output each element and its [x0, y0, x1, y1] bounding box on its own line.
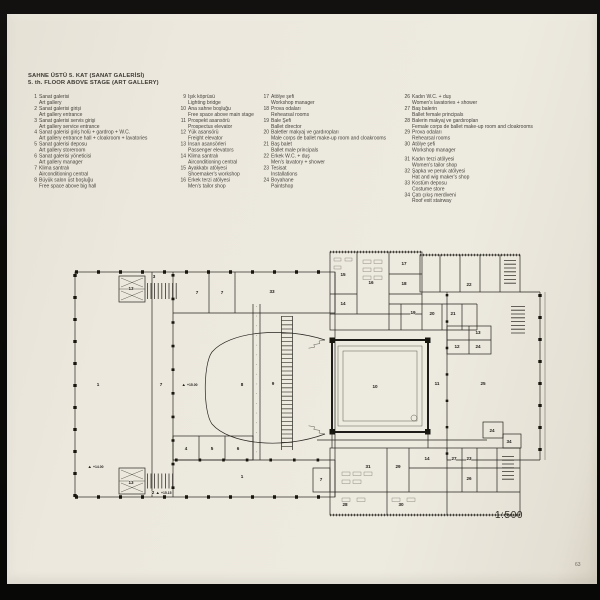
svg-text:25: 25	[480, 381, 486, 386]
legend-item: 5Sanat galerisi deposuArt gallery storer…	[28, 142, 147, 154]
svg-text:11: 11	[435, 381, 440, 386]
legend-item: 20Baletler makyaj ve gardıroplarıMale co…	[260, 130, 386, 142]
plan-title-english: 5. th. FLOOR ABOVE STAGE (ART GALLERY)	[28, 79, 159, 86]
plan-title-turkish: SAHNE ÜSTÜ 5. KAT (SANAT GALERİSİ)	[28, 72, 159, 79]
auditorium-void	[205, 332, 325, 443]
svg-text:29: 29	[395, 464, 401, 469]
svg-text:33: 33	[269, 289, 275, 294]
svg-text:13: 13	[128, 480, 134, 485]
floor-plan: 1337733151617181419202122178910112512132…	[57, 244, 557, 544]
svg-text:27: 27	[451, 456, 457, 461]
legend-item: 14Klima santralıAirconditioning central	[177, 154, 254, 166]
svg-text:31: 31	[365, 464, 371, 469]
floor-plan-drawing: 1337733151617181419202122178910112512132…	[57, 244, 557, 544]
book-page: SAHNE ÜSTÜ 5. KAT (SANAT GALERİSİ) 5. th…	[7, 14, 597, 584]
legend-item: 32Şapka ve peruk atölyesiHat and wig mak…	[401, 168, 533, 180]
legend-item: 6Sanat galerisi yöneticisiArt gallery ma…	[28, 154, 147, 166]
svg-text:2: 2	[152, 490, 155, 495]
legend-item: 9Işık köprüsüLighting bridge	[177, 94, 254, 106]
legend-item: 31Kadın terzi atölyesiWomen's tailor sho…	[401, 157, 533, 169]
legend-item: 34Çatı çıkış merdiveniRoof exit stairway	[401, 192, 533, 204]
svg-text:18: 18	[401, 281, 407, 286]
legend-item: 26Kadın W.C. + duşWomen's lavatories + s…	[401, 94, 533, 106]
plan-title: SAHNE ÜSTÜ 5. KAT (SANAT GALERİSİ) 5. th…	[28, 72, 159, 86]
legend-item: 27Baş balerinBallet female principals	[401, 106, 533, 118]
svg-text:13: 13	[128, 286, 134, 291]
svg-text:7: 7	[160, 382, 163, 387]
legend-item: 29Prova odalarıRehearsal rooms	[401, 130, 533, 142]
svg-text:16: 16	[368, 280, 374, 285]
scale-label: 1:500	[495, 510, 523, 521]
svg-text:22: 22	[466, 282, 472, 287]
svg-text:26: 26	[466, 476, 472, 481]
svg-text:7: 7	[196, 290, 199, 295]
legend-item: 15Ayakkabı atölyesiShoemaker's workshop	[177, 165, 254, 177]
legend-item: 24BoyahanePaintshop	[260, 177, 386, 189]
legend-item: 30Atölye şefiWorkshop manager	[401, 142, 533, 154]
legend-item: 21Baş baletBallet male principals	[260, 142, 386, 154]
legend-item: 10Ana sahne boşluğuFree space above main…	[177, 106, 254, 118]
svg-text:1: 1	[241, 474, 244, 479]
svg-text:7: 7	[221, 290, 224, 295]
svg-text:+14.00: +14.00	[93, 465, 104, 469]
svg-text:24: 24	[489, 428, 495, 433]
legend-item: 7Klima santralıAirconditioning central	[28, 165, 147, 177]
legend-item: 17Atölye şefiWorkshop manager	[260, 94, 386, 106]
legend-column-4: 26Kadın W.C. + duşWomen's lavatories + s…	[401, 94, 533, 204]
svg-text:1: 1	[97, 382, 100, 387]
svg-text:14: 14	[340, 301, 346, 306]
svg-text:34: 34	[506, 439, 512, 444]
svg-text:20: 20	[429, 311, 435, 316]
svg-text:30: 30	[398, 502, 404, 507]
legend-item: 2Sanat galerisi girişiArt gallery entran…	[28, 106, 147, 118]
top-workshop-block	[330, 252, 422, 330]
legend-item: 22Erkek W.C. + duşMen's lavatory + showe…	[260, 154, 386, 166]
svg-text:23: 23	[466, 456, 472, 461]
legend-item: 33Kostüm deposuCostume store	[401, 180, 533, 192]
legend-item: 12Yük asansörüFreight elevator	[177, 130, 254, 142]
svg-text:6: 6	[237, 446, 240, 451]
page-number: 63	[575, 562, 581, 568]
legend-item: 3Sanat galerisi servis girişiArt gallery…	[28, 118, 147, 130]
svg-text:13: 13	[475, 330, 481, 335]
legend-item: 11Prospekt asansörüProspectus elevator	[177, 118, 254, 130]
column-grid	[75, 272, 540, 497]
legend-item: 19Bale ŞefiBallet director	[260, 118, 386, 130]
svg-text:4: 4	[185, 446, 188, 451]
workbenches-bottom	[342, 472, 415, 502]
svg-text:3: 3	[153, 274, 156, 279]
svg-text:19: 19	[410, 310, 416, 315]
svg-text:21: 21	[450, 311, 456, 316]
svg-text:24: 24	[475, 344, 481, 349]
legend-item: 8Büyük salon üst boşluğuFree space above…	[28, 177, 147, 189]
legend-item: 18Prova odalarıRehearsal rooms	[260, 106, 386, 118]
svg-text:7: 7	[320, 477, 323, 482]
legend-column-1: 1Sanat galerisiArt gallery2Sanat galeris…	[28, 94, 147, 189]
svg-text:8: 8	[241, 382, 244, 387]
svg-text:14: 14	[424, 456, 430, 461]
book-photo: SAHNE ÜSTÜ 5. KAT (SANAT GALERİSİ) 5. th…	[0, 0, 600, 600]
lighting-bridge	[282, 316, 293, 450]
legend-item: 28Balerin makyaj ve gardıroplarıFemale c…	[401, 118, 533, 130]
legend-item: 13İnsan asansörleriPassenger elevators	[177, 142, 254, 154]
stage-block	[330, 338, 431, 449]
svg-text:+15.00: +15.00	[187, 383, 198, 387]
legend-item: 1Sanat galerisiArt gallery	[28, 94, 147, 106]
legend-column-2: 9Işık köprüsüLighting bridge10Ana sahne …	[177, 94, 254, 189]
svg-text:9: 9	[272, 381, 275, 386]
svg-text:5: 5	[211, 446, 214, 451]
legend-column-3: 17Atölye şefiWorkshop manager18Prova oda…	[260, 94, 386, 189]
svg-text:12: 12	[454, 344, 460, 349]
legend-item: 23TesisatInstallations	[260, 165, 386, 177]
legend-item: 4Sanat galerisi giriş holü + gardrop + W…	[28, 130, 147, 142]
svg-text:15: 15	[340, 272, 346, 277]
svg-text:10: 10	[372, 384, 378, 389]
svg-text:28: 28	[342, 502, 348, 507]
legend-item: 16Erkek terzi atölyesiMen's tailor shop	[177, 177, 254, 189]
svg-text:17: 17	[401, 261, 407, 266]
right-wing	[420, 255, 540, 292]
svg-text:+15.15: +15.15	[161, 491, 172, 495]
